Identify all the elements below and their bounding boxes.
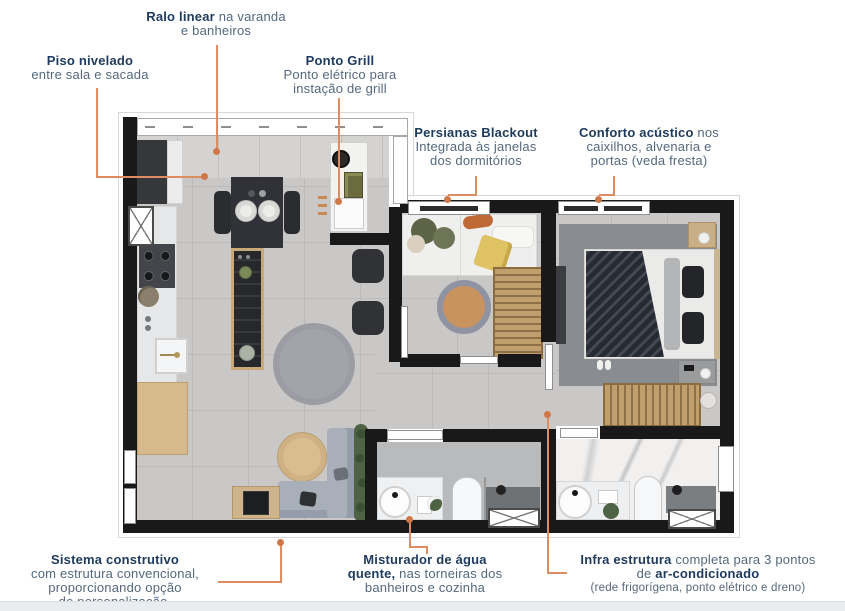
leader-conforto-dot [595,196,602,203]
dining-chair-left [214,191,231,234]
callout-ralo-linear: Ralo linear na varanda e banheiros [146,10,286,38]
kitchen-sink [155,338,188,374]
master-pillow-dark-1 [682,266,704,298]
master-stool [700,392,717,409]
bathroom2-tray [598,490,618,504]
bathroom1-door [387,430,443,440]
wall-master-bottom [600,426,720,439]
bathroom1-shower-head [496,485,506,495]
master-pillow-dark-2 [682,312,704,344]
callout-ponto-grill: Ponto Grill Ponto elétrico para instação… [284,54,397,96]
bench-lamp [700,368,711,379]
wall-bedroom1-bottom-b [498,354,541,367]
leader-piso-dot [201,173,208,180]
bathroom2-side-window [718,446,734,492]
bedroom1-door-swing [460,356,498,364]
bathroom2-window [668,509,716,529]
slipper-2 [605,360,611,370]
leader-ralo-v [216,45,218,151]
bedroom1-wardrobe [493,267,543,359]
bottom-page-band [0,601,845,611]
bathroom1-tap [392,492,398,498]
kitchen-tall-cabinet [167,140,183,204]
bathroom1-shower-glass [484,477,486,520]
sofa-cushion-gray [333,467,349,481]
slipper-1 [597,360,603,370]
master-wall-desk [556,266,566,344]
callout-piso-nivelado: Piso nivelado entre sala e sacada [31,54,148,82]
wall-bedroom1-bottom-a [400,354,460,367]
grill [332,150,350,168]
bathroom2-toilet [634,476,662,523]
table-bowl-1 [248,190,255,197]
cooktop [139,244,175,288]
master-door [545,344,553,390]
leader-sistema-dot [277,539,284,546]
bedroom1-bed-fold [460,214,461,276]
leader-infra-dot [544,411,551,418]
table-bowl-2 [259,190,266,197]
master-blind-1 [564,206,598,211]
living-window-1 [124,450,136,484]
prep-plate [138,286,159,307]
leader-misturador-v [409,522,411,548]
balcony-railing-ticks [145,126,400,128]
master-wardrobe [603,383,701,427]
bathroom1-toilet [452,477,482,523]
bathroom1-sink [379,486,411,518]
bathroom2-tap [572,490,578,496]
lounge-chair-2 [352,301,384,335]
leader-infra-h [547,572,567,574]
bathroom2-shower-head [672,485,682,495]
bathroom1-window [488,508,540,528]
bedroom1-blind [420,206,478,211]
tv [243,491,269,515]
sofa-cushion-dark [299,491,317,507]
dinner-plate-1 [235,200,257,222]
bedroom1-rug [437,280,491,334]
leader-infra-v [547,418,549,574]
leader-piso-v [96,88,98,178]
living-room-rug [273,323,355,405]
wall-bathroom1-top-b [443,429,541,442]
kitchen-jar-1 [145,316,151,322]
coffee-table [277,432,327,482]
grill-food-tray [344,172,363,198]
leader-conforto-h [599,194,615,196]
dining-chair-right [284,191,300,234]
wall-between-bedrooms [541,207,556,342]
leader-piso-h [96,176,204,178]
kitchen-jar-2 [145,325,151,331]
kitchen-window [128,206,154,246]
master-pillow-band [664,258,680,350]
callout-misturador: Misturador de água quente, nas torneiras… [348,553,503,595]
island-knob-2 [246,255,250,259]
wall-bottom [123,520,734,533]
fridge [137,140,167,204]
pillow-olive-2 [433,227,455,249]
master-blind-2 [604,206,642,211]
leader-persianas-v [475,176,477,196]
pillow-cream [407,235,425,253]
leader-grill-v [338,98,340,201]
callout-persianas-blackout: Persianas Blackout Integrada às janelas … [414,126,538,168]
leader-conforto-v [613,176,615,196]
callout-infra-estrutura: Infra estrutura completa para 3 pontos d… [580,553,815,595]
balcony-railing-right [393,136,408,204]
bathroom1-flowers [427,496,442,511]
leader-misturador-dot [406,516,413,523]
callout-conforto-acustico: Conforto acústico nos caixilhos, alvenar… [579,126,719,168]
leader-sistema-v [280,544,282,583]
floor-plan-infographic: Ralo linear na varanda e banheiros Piso … [0,0,845,611]
leader-persianas-h [448,194,477,196]
wall-balcony-stub [330,233,395,245]
bench-phone [684,365,694,371]
grill-hook-1 [318,196,327,199]
island-vase [239,345,255,361]
nightstand-lamp [698,232,710,244]
kitchen-wood-table [137,382,188,455]
bedroom1-door [401,306,408,358]
kitchen-sink-drain [174,352,180,358]
lounge-chair-1 [352,249,384,283]
dinner-plate-2 [258,200,280,222]
wall-bathroom1-left [365,429,377,532]
bathroom2-plant [603,503,619,519]
leader-grill-dot [335,198,342,205]
island-bowl [239,266,252,279]
grill-hook-2 [318,204,327,207]
grill-hook-3 [318,212,327,215]
living-window-2 [124,488,136,524]
island-knob-1 [238,255,242,259]
bathroom2-door [560,428,598,438]
leader-sistema-h [218,581,282,583]
leader-ralo-dot [213,148,220,155]
leader-persianas-dot [444,196,451,203]
